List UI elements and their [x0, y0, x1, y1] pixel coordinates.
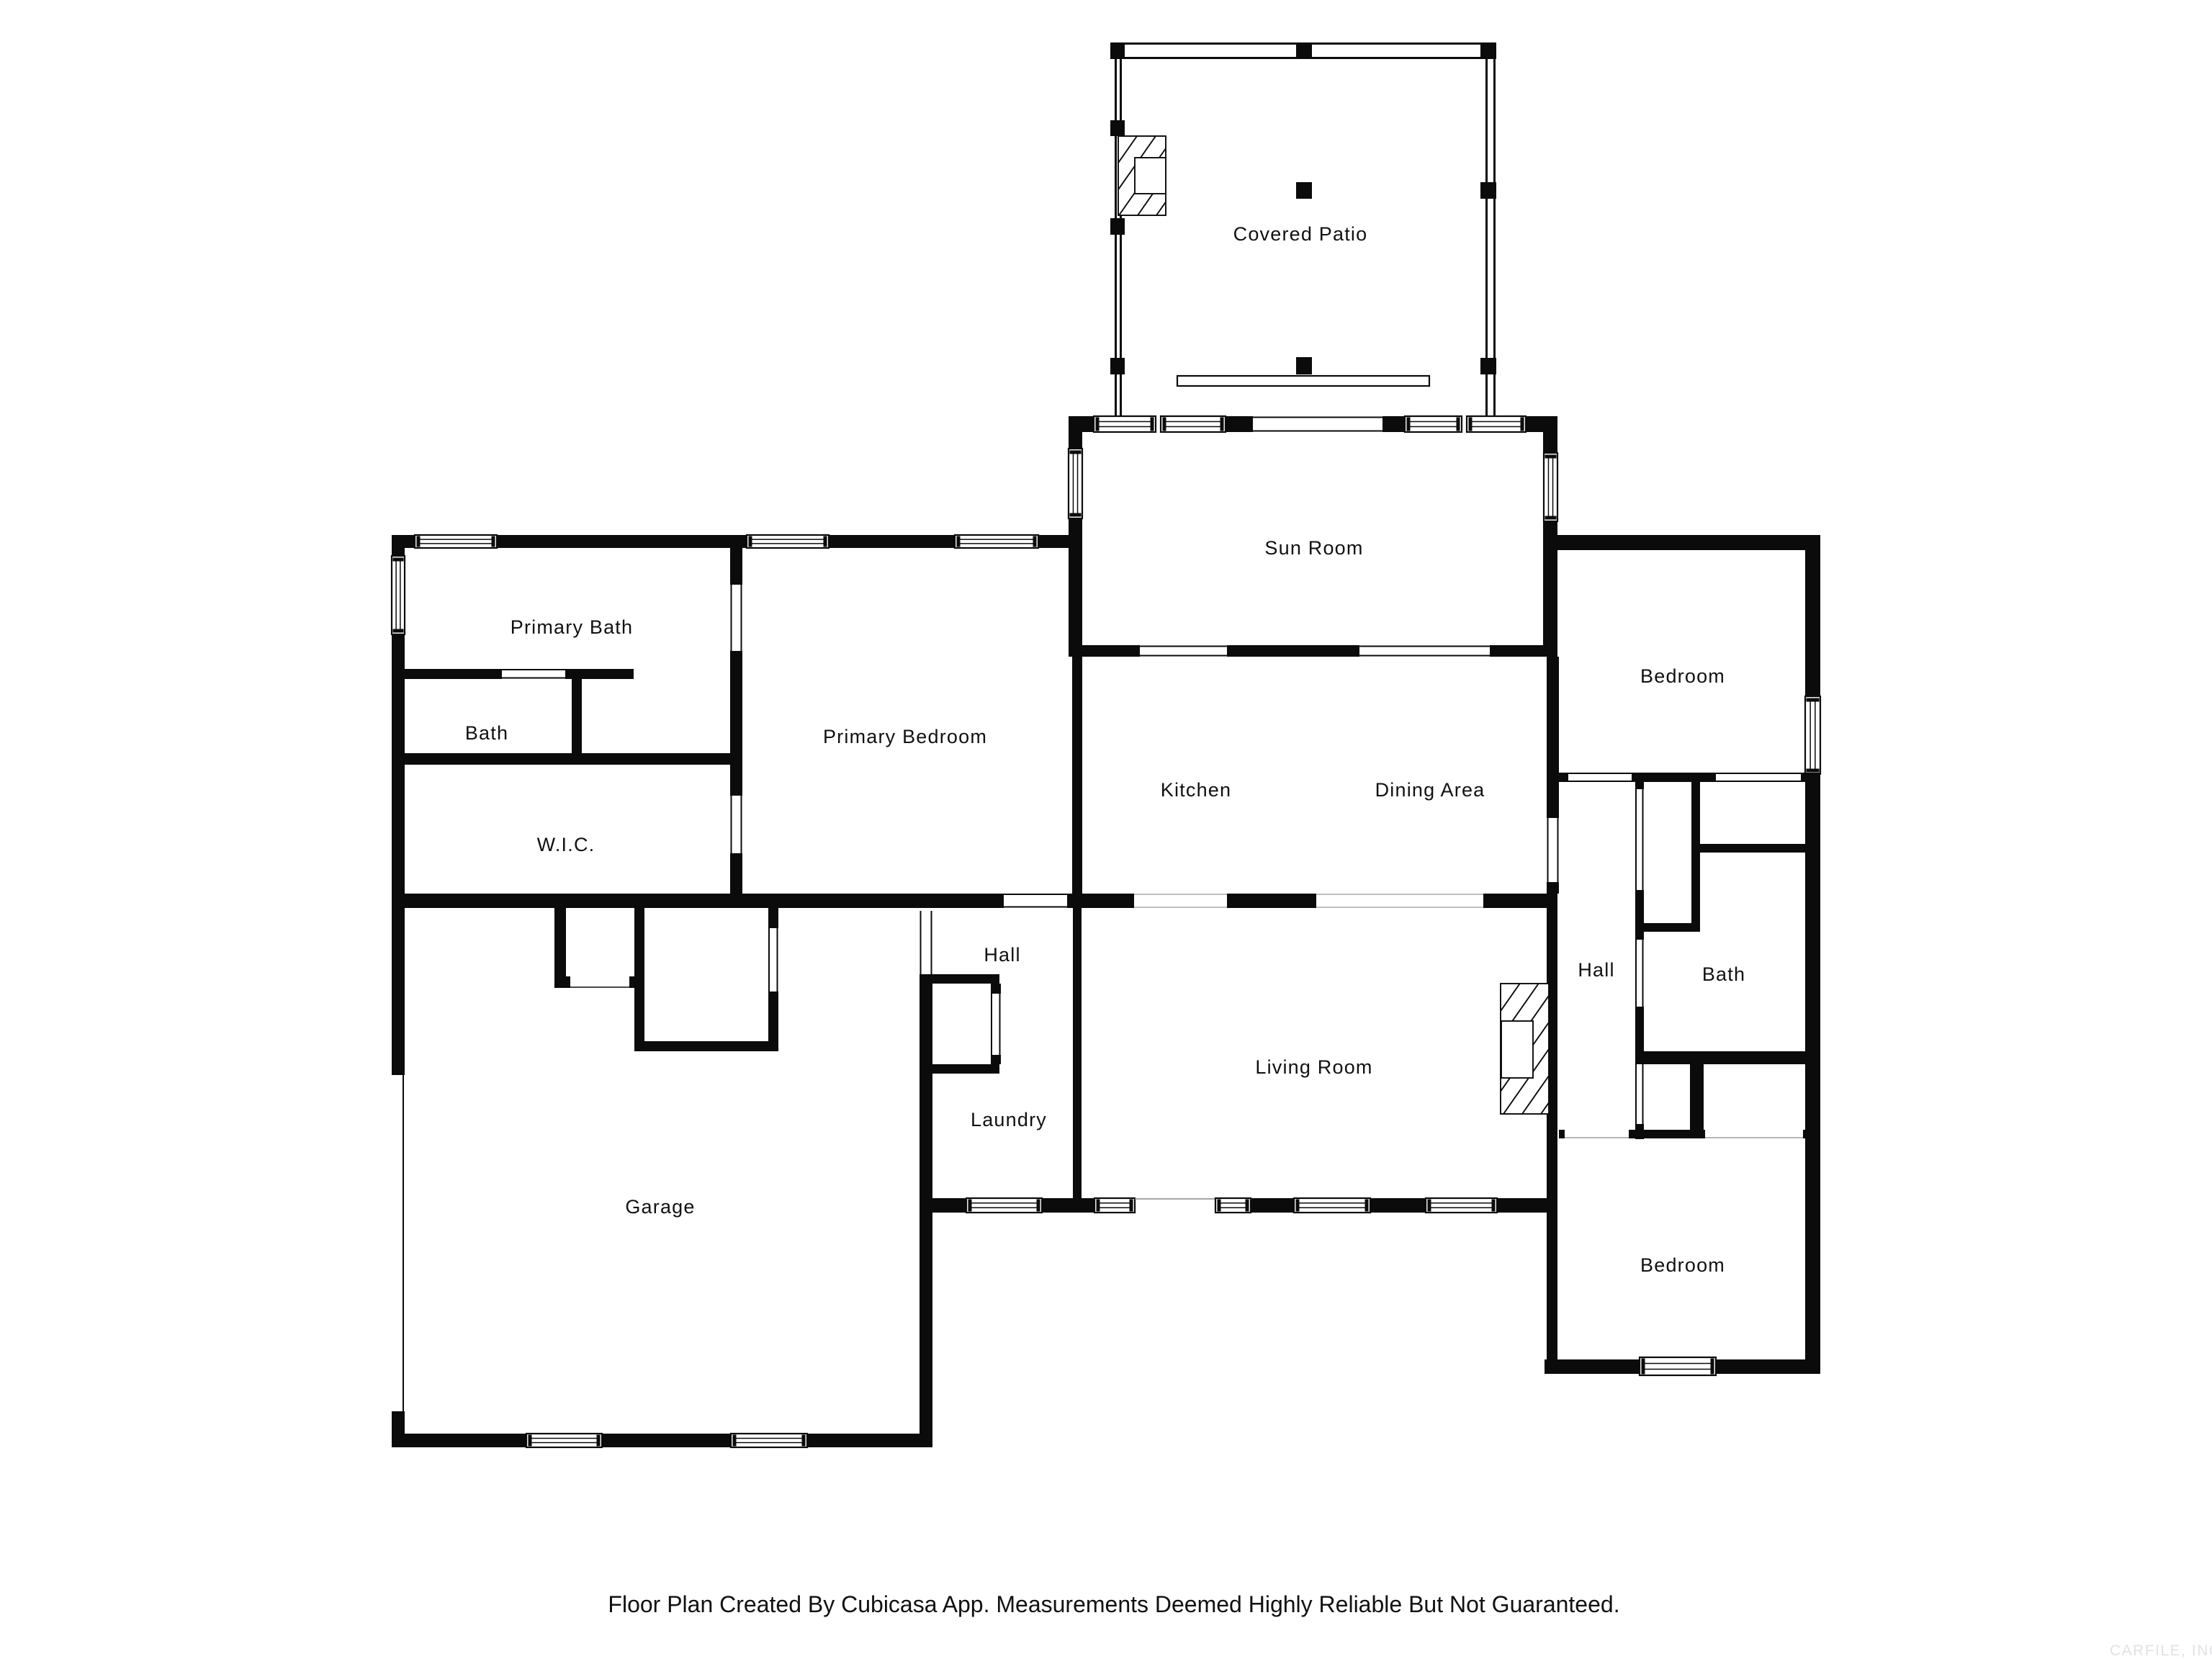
svg-text:Bedroom: Bedroom [1640, 1254, 1725, 1276]
svg-text:Living Room: Living Room [1255, 1056, 1372, 1078]
svg-text:Laundry: Laundry [971, 1109, 1047, 1130]
svg-text:Primary Bedroom: Primary Bedroom [823, 726, 987, 747]
svg-text:Dining Area: Dining Area [1375, 779, 1485, 801]
svg-text:Hall: Hall [1578, 959, 1614, 981]
svg-text:Covered Patio: Covered Patio [1233, 223, 1368, 245]
svg-text:Kitchen: Kitchen [1161, 779, 1231, 801]
svg-text:Garage: Garage [625, 1196, 695, 1218]
svg-text:Hall: Hall [984, 944, 1020, 966]
svg-text:Primary Bath: Primary Bath [511, 616, 633, 638]
svg-text:W.I.C.: W.I.C. [537, 834, 595, 855]
svg-text:Sun Room: Sun Room [1264, 537, 1363, 559]
svg-text:Bath: Bath [1702, 963, 1745, 985]
svg-text:Bedroom: Bedroom [1640, 665, 1725, 687]
svg-text:Bath: Bath [465, 722, 508, 744]
svg-text:Floor Plan Created By Cubicasa: Floor Plan Created By Cubicasa App. Meas… [608, 1591, 1619, 1617]
svg-text:CARFILE, INC: CARFILE, INC [2110, 1642, 2212, 1659]
